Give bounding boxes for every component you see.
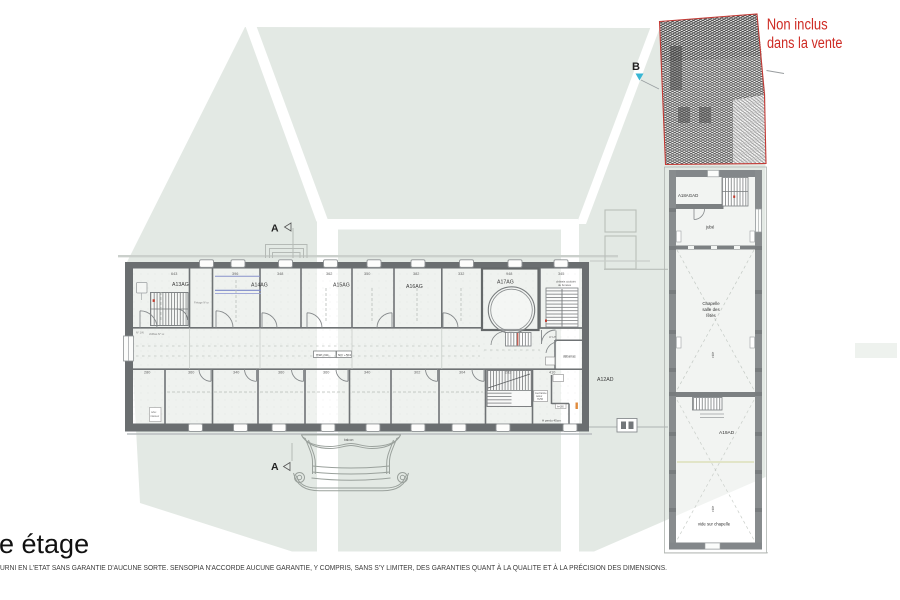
svg-text:360: 360 (188, 371, 194, 375)
svg-text:396: 396 (232, 272, 238, 276)
svg-text:410: 410 (549, 371, 555, 375)
svg-text:A15AG: A15AG (333, 283, 350, 289)
svg-text:e étage: e étage (0, 529, 89, 559)
svg-text:360: 360 (323, 371, 329, 375)
svg-text:304: 304 (459, 371, 465, 375)
svg-text:A: A (271, 461, 279, 473)
svg-text:intérieur: intérieur (151, 415, 160, 418)
svg-text:Non inclus: Non inclus (767, 17, 828, 34)
svg-text:340: 340 (233, 371, 239, 375)
svg-text:A16AG: A16AG (406, 284, 423, 290)
svg-text:282: 282 (505, 371, 511, 375)
svg-text:débarras: débarras (563, 355, 576, 359)
svg-text:dans la vente: dans la vente (767, 35, 843, 52)
svg-text:H perdu 45cm: H perdu 45cm (542, 419, 561, 423)
svg-text:7b/56: 7b/56 (537, 398, 544, 401)
svg-text:Chapelle: Chapelle (702, 301, 720, 306)
svg-text:360: 360 (278, 371, 284, 375)
svg-text:B: B (632, 61, 640, 73)
svg-text:332: 332 (458, 272, 464, 276)
svg-text:340: 340 (364, 371, 370, 375)
svg-text:N° 1/N: N° 1/N (136, 331, 144, 335)
svg-text:URNI EN L'ETAT SANS GARANTIE D: URNI EN L'ETAT SANS GARANTIE D'AUCUNE SO… (0, 563, 667, 572)
svg-text:fêtes: fêtes (706, 313, 716, 318)
svg-text:948: 948 (506, 272, 512, 276)
svg-text:382: 382 (413, 272, 419, 276)
svg-text:salle des: salle des (702, 307, 720, 312)
svg-text:350: 350 (364, 272, 370, 276)
svg-text:A18AGAD: A18AGAD (678, 193, 698, 198)
svg-text:A19AD: A19AD (719, 430, 735, 436)
svg-text:A: A (271, 223, 279, 235)
svg-text:302: 302 (414, 371, 420, 375)
svg-text:jubé: jubé (705, 225, 715, 230)
svg-text:345: 345 (558, 272, 564, 276)
svg-text:A13AG: A13AG (172, 282, 189, 288)
svg-text:de fumées: de fumées (558, 283, 572, 287)
svg-text:280: 280 (144, 371, 150, 375)
svg-text:refux: refux (151, 411, 157, 414)
svg-text:P.etage N°xx: P.etage N°xx (194, 301, 210, 305)
svg-text:vide: vide (711, 352, 715, 358)
svg-text:A17AG: A17AG (497, 280, 514, 286)
svg-text:A14AG: A14AG (251, 283, 268, 289)
svg-text:NIV +504: NIV +504 (338, 353, 351, 357)
svg-text:vide: vide (711, 506, 715, 512)
svg-text:A12AD: A12AD (597, 377, 614, 383)
svg-text:chiffres N° xx: chiffres N° xx (149, 332, 165, 336)
svg-text:W 1/8: W 1/8 (549, 335, 556, 339)
svg-text:643: 643 (171, 272, 177, 276)
svg-text:h=180: h=180 (557, 406, 564, 409)
svg-text:348: 348 (277, 272, 283, 276)
svg-text:vide sur chapelle: vide sur chapelle (698, 522, 731, 527)
svg-text:balcon: balcon (344, 438, 354, 442)
svg-text:362: 362 (326, 272, 332, 276)
